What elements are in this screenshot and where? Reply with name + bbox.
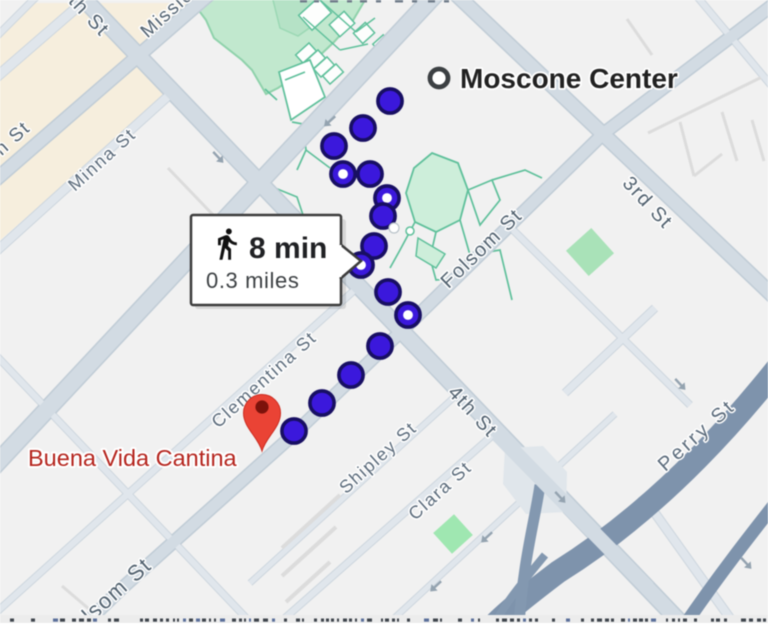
svg-text:Moscone Center: Moscone Center [460, 63, 678, 94]
svg-text:0.3 miles: 0.3 miles [206, 268, 299, 293]
svg-text:Buena Vida Cantina: Buena Vida Cantina [28, 445, 238, 471]
svg-text:8 min: 8 min [249, 232, 327, 265]
